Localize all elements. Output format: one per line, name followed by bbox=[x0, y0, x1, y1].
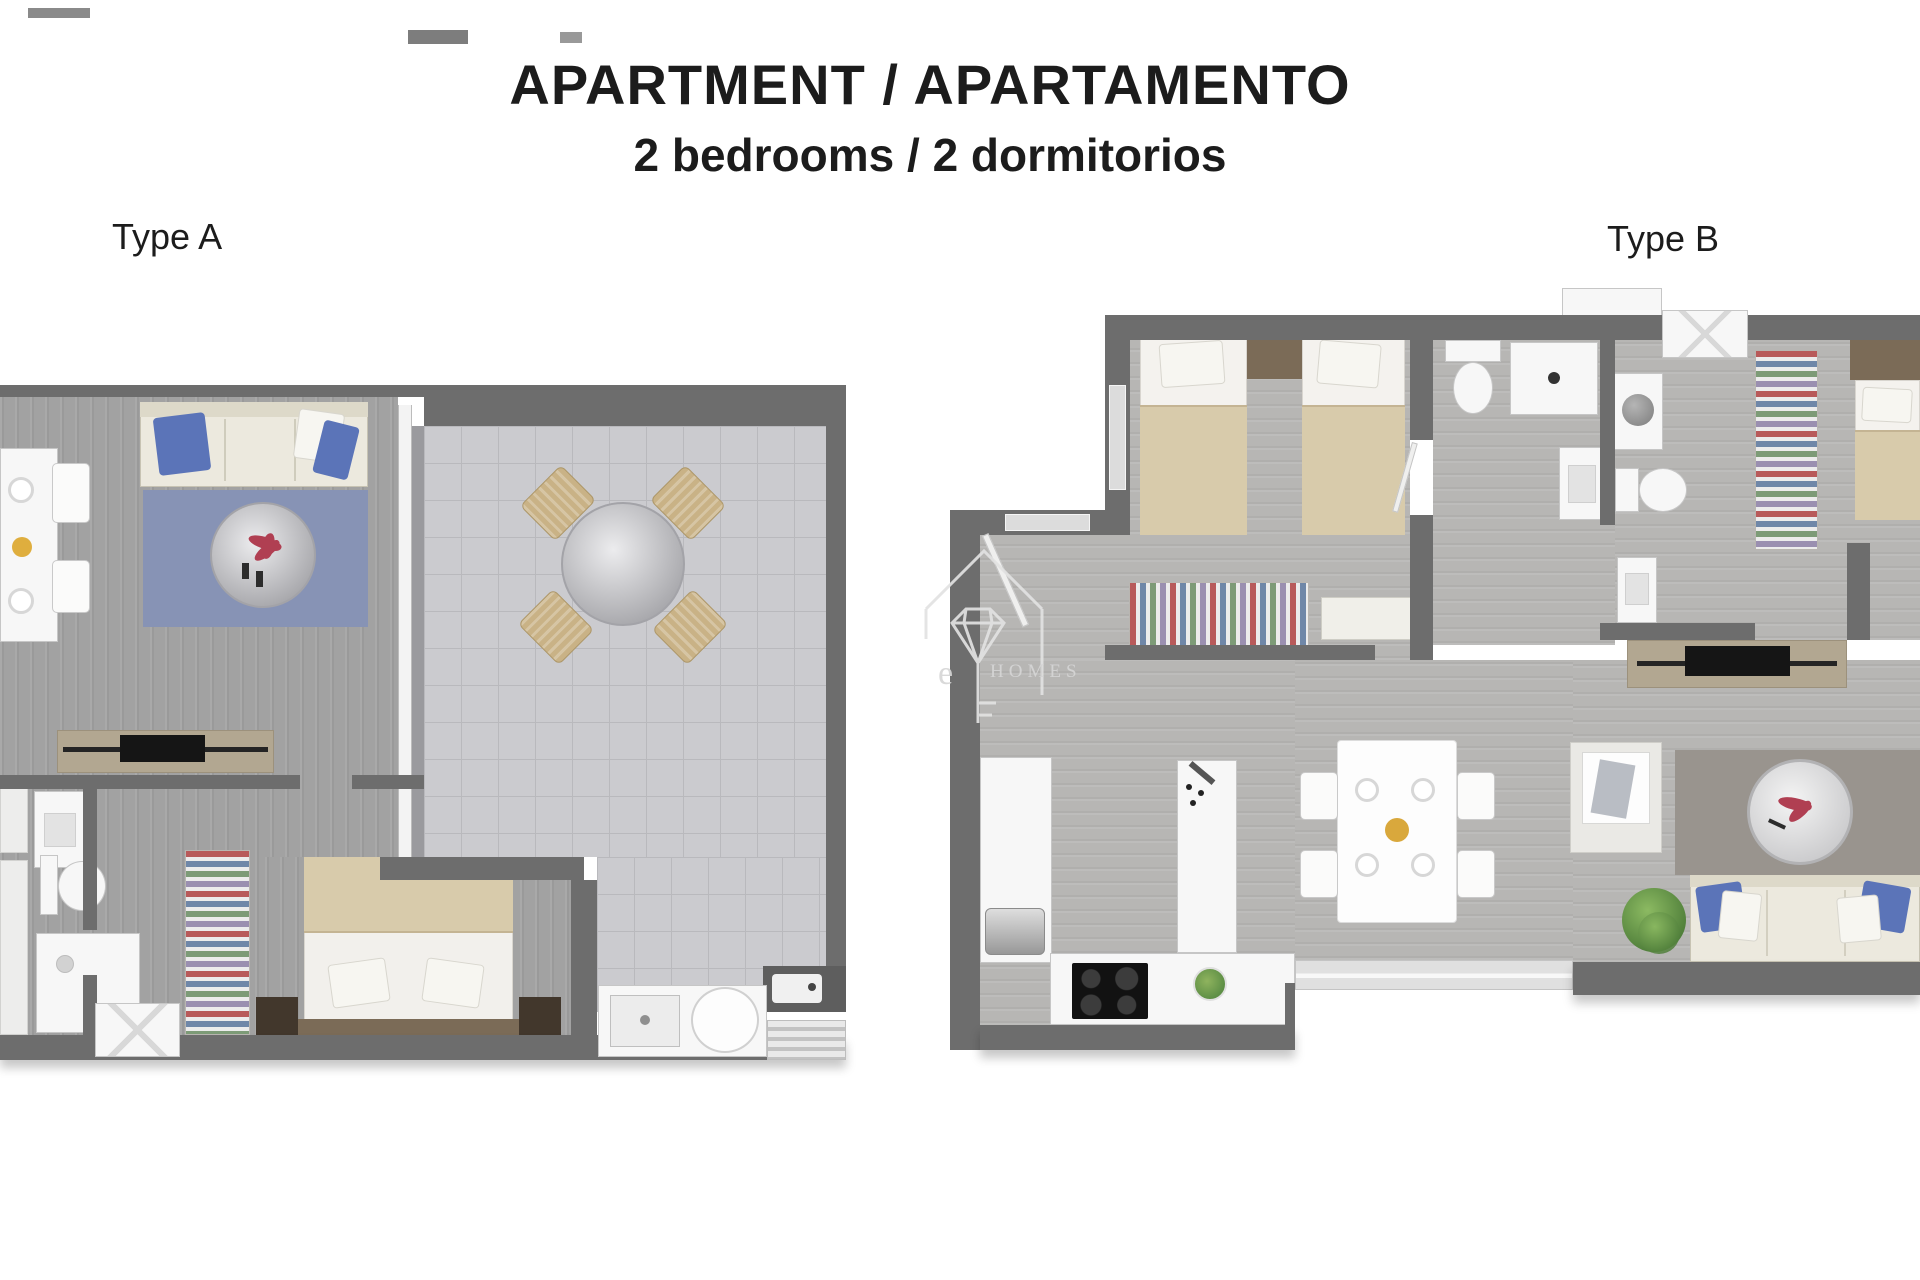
nightstand bbox=[519, 997, 561, 1035]
crop-artifact bbox=[28, 8, 90, 18]
plan-label-type-b: Type B bbox=[1607, 218, 1719, 260]
wall bbox=[1847, 543, 1870, 640]
toilet-bowl bbox=[58, 861, 106, 911]
sofa-pillow bbox=[1718, 890, 1763, 942]
plate bbox=[1411, 853, 1435, 877]
tv-screen bbox=[120, 735, 205, 762]
plate bbox=[8, 588, 34, 614]
basin bbox=[1568, 465, 1596, 503]
floorplan-sheet: APARTMENT / APARTAMENTO 2 bedrooms / 2 d… bbox=[0, 0, 1920, 1280]
wall bbox=[1105, 315, 1920, 340]
dining-chair bbox=[1300, 850, 1338, 898]
terrace-door-frame bbox=[412, 426, 424, 868]
wall bbox=[0, 775, 300, 789]
wall bbox=[571, 880, 597, 1035]
wardrobe bbox=[1755, 350, 1818, 550]
dining-chair bbox=[1457, 850, 1495, 898]
toilet-tank bbox=[1445, 340, 1501, 362]
spice-jar bbox=[1190, 800, 1196, 806]
toilet-bowl bbox=[1639, 468, 1687, 512]
page-title: APARTMENT / APARTAMENTO bbox=[509, 52, 1350, 117]
fridge bbox=[985, 908, 1045, 955]
basin bbox=[1625, 573, 1649, 605]
headboard bbox=[296, 1019, 521, 1035]
bed-blanket bbox=[1855, 430, 1920, 520]
terrace-table bbox=[561, 502, 685, 626]
wall bbox=[380, 857, 584, 880]
cut-fixture bbox=[0, 787, 28, 853]
dining-chair bbox=[52, 560, 90, 613]
spice-jar bbox=[1198, 790, 1204, 796]
bed-pillow bbox=[1861, 387, 1913, 424]
wardrobe bbox=[185, 850, 250, 1035]
blue-throw bbox=[153, 412, 212, 476]
spice-jar bbox=[1186, 784, 1192, 790]
cut-fixture bbox=[0, 860, 28, 1035]
shower-drain bbox=[56, 955, 74, 973]
basin bbox=[44, 813, 76, 847]
drying-rack bbox=[767, 1020, 846, 1060]
plant bbox=[1638, 912, 1680, 954]
watermark-word: homes bbox=[990, 653, 1082, 684]
plate bbox=[8, 477, 34, 503]
sofa-pillow bbox=[1836, 894, 1882, 943]
sofa-seam bbox=[1766, 890, 1768, 956]
bed-pillow bbox=[421, 957, 485, 1009]
wall bbox=[83, 787, 97, 930]
wall bbox=[1285, 983, 1295, 1025]
cooktop bbox=[1072, 963, 1148, 1019]
bed-blanket bbox=[1140, 405, 1247, 535]
bed-pillow bbox=[1159, 340, 1226, 388]
watermark-prefix: e bbox=[938, 655, 953, 693]
wall bbox=[1105, 645, 1375, 660]
salad-bowl bbox=[1193, 967, 1227, 1001]
ac-vent bbox=[808, 983, 816, 991]
terrace-floor bbox=[424, 426, 826, 857]
bed-pillow bbox=[1316, 339, 1382, 388]
window bbox=[1109, 385, 1126, 490]
wardrobe bbox=[1129, 582, 1309, 650]
wall bbox=[1410, 515, 1433, 660]
toilet-tank bbox=[40, 855, 58, 915]
toilet-tank bbox=[1615, 468, 1639, 512]
round-basin-bowl bbox=[1622, 394, 1654, 426]
nightstand bbox=[256, 997, 298, 1035]
tv-screen bbox=[1685, 646, 1790, 676]
crop-artifact bbox=[560, 32, 582, 43]
shower-tray bbox=[95, 1003, 180, 1057]
fruit-bowl bbox=[12, 537, 32, 557]
watermark-logo-icon bbox=[920, 545, 1070, 730]
window bbox=[1005, 514, 1090, 531]
terrace-glass-door bbox=[398, 405, 412, 868]
crop-artifact bbox=[408, 30, 468, 44]
centerpiece bbox=[1385, 818, 1409, 842]
sofa-seam bbox=[224, 419, 226, 481]
plan-type-a bbox=[0, 385, 846, 1065]
plate bbox=[1355, 778, 1379, 802]
dining-chair bbox=[1300, 772, 1338, 820]
shower-drain bbox=[1548, 372, 1560, 384]
wall bbox=[1600, 623, 1755, 640]
sliding-door-sill bbox=[1295, 960, 1573, 990]
wall bbox=[1410, 340, 1433, 440]
wall bbox=[1573, 962, 1920, 995]
wall bbox=[826, 426, 846, 1012]
wall bbox=[352, 775, 424, 789]
plate bbox=[1355, 853, 1379, 877]
figurine bbox=[256, 571, 263, 587]
round-basin bbox=[691, 987, 759, 1053]
wall bbox=[424, 385, 846, 426]
page-subtitle: 2 bedrooms / 2 dormitorios bbox=[634, 128, 1227, 182]
duct-box bbox=[1562, 288, 1662, 318]
faucet bbox=[640, 1015, 650, 1025]
wall bbox=[0, 385, 424, 397]
wall bbox=[980, 1025, 1295, 1050]
dining-chair bbox=[1457, 772, 1495, 820]
dining-chair bbox=[52, 463, 90, 523]
shower-tray bbox=[1662, 310, 1748, 358]
toilet-bowl bbox=[1453, 362, 1493, 414]
figurine bbox=[242, 563, 249, 579]
plan-label-type-a: Type A bbox=[112, 216, 222, 258]
watermark: e homes bbox=[920, 545, 1120, 745]
plate bbox=[1411, 778, 1435, 802]
bed-blanket bbox=[1302, 405, 1405, 535]
bed-pillow bbox=[327, 957, 391, 1009]
wall bbox=[1600, 340, 1615, 525]
